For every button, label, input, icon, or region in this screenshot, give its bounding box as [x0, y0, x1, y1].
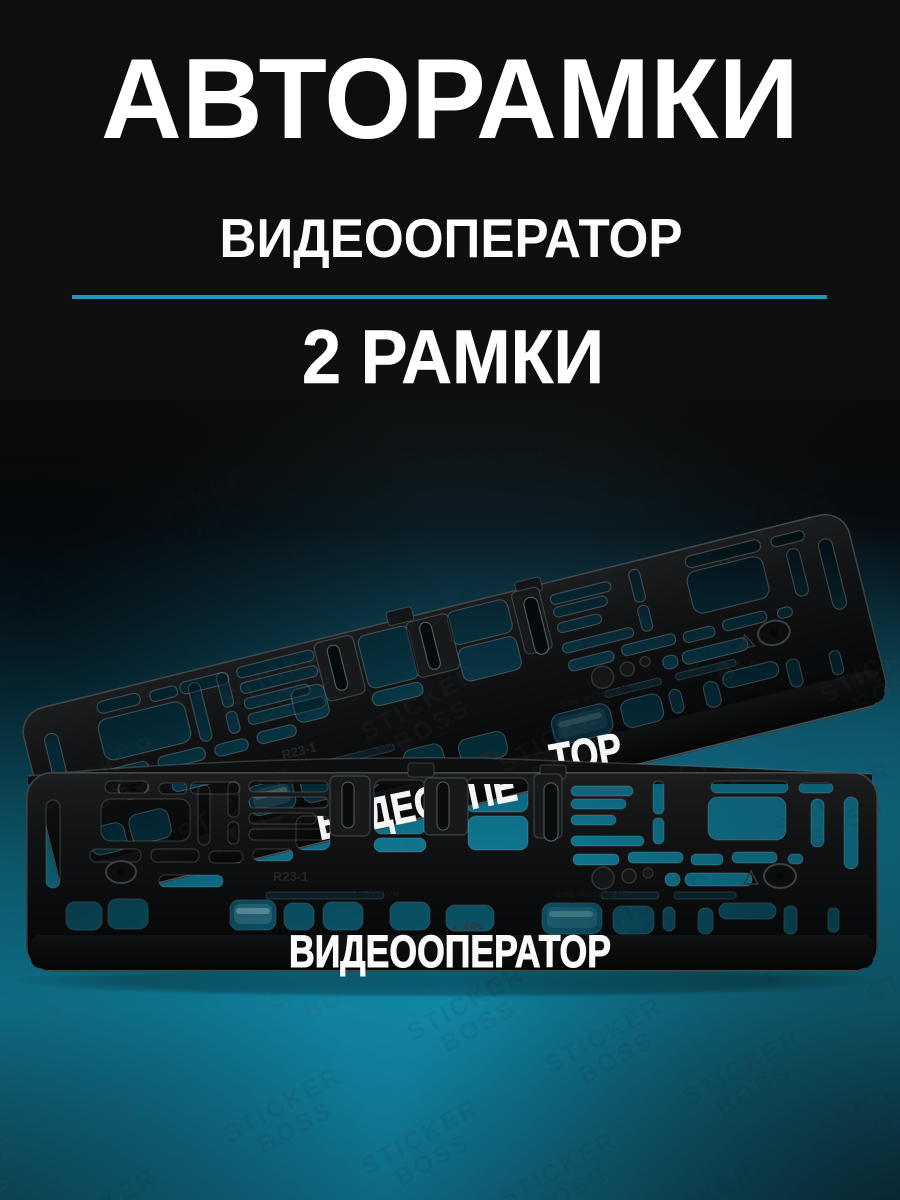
svg-text:АВТОРАМКИ: АВТОРАМКИ [101, 36, 799, 163]
svg-text:ВИДЕООПЕРАТОР: ВИДЕООПЕРАТОР [220, 207, 683, 269]
svg-text:ВИДЕООПЕРАТОР: ВИДЕООПЕРАТОР [289, 926, 611, 977]
svg-text:2 РАМКИ: 2 РАМКИ [302, 315, 604, 400]
